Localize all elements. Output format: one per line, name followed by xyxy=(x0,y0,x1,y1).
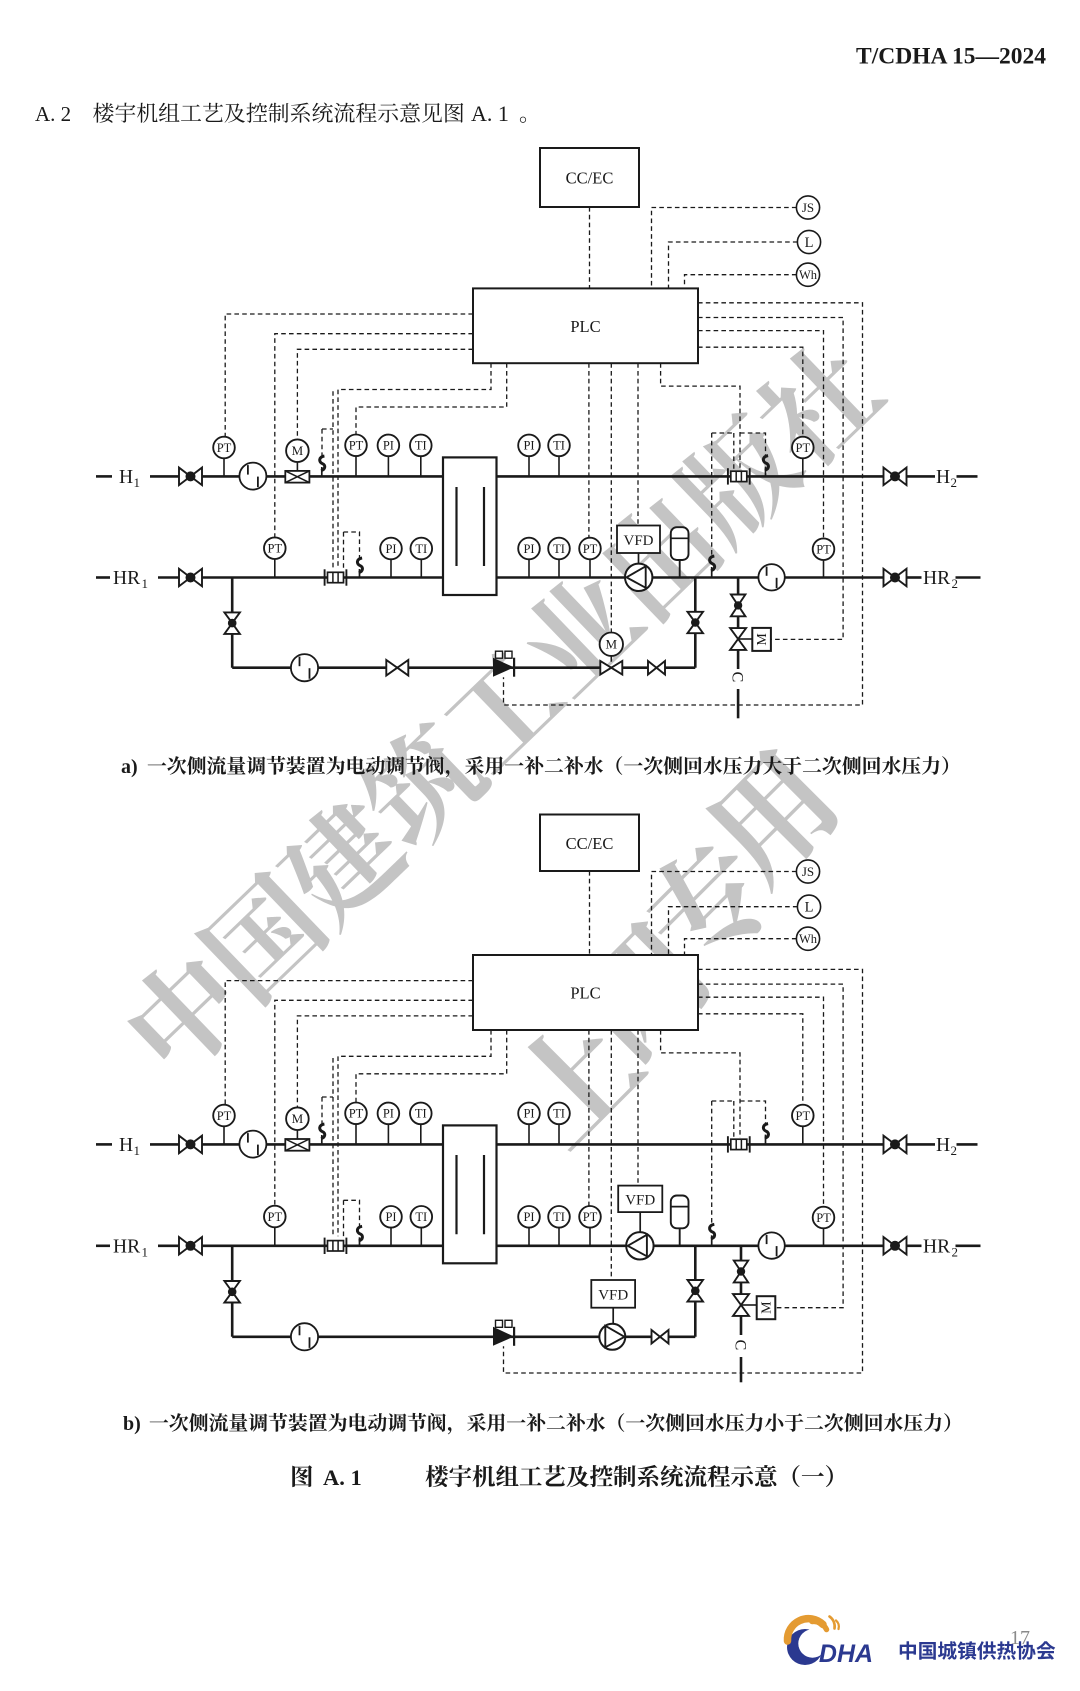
svg-text:M: M xyxy=(292,443,304,458)
svg-text:PLC: PLC xyxy=(570,317,600,336)
svg-text:L: L xyxy=(805,900,814,916)
svg-text:M: M xyxy=(606,637,618,652)
svg-text:PT: PT xyxy=(816,543,831,557)
svg-text:PI: PI xyxy=(385,542,396,556)
svg-text:1: 1 xyxy=(134,1143,141,1158)
svg-text:A. 1: A. 1 xyxy=(471,101,509,126)
svg-text:PT: PT xyxy=(349,439,364,453)
svg-text:CC/EC: CC/EC xyxy=(566,834,614,853)
svg-text:CC/EC: CC/EC xyxy=(566,169,614,188)
svg-text:PT: PT xyxy=(583,1210,598,1224)
svg-text:PT: PT xyxy=(816,1211,831,1225)
svg-text:TI: TI xyxy=(415,1210,427,1224)
svg-text:VFD: VFD xyxy=(623,533,653,549)
svg-text:JS: JS xyxy=(802,864,814,879)
svg-text:H: H xyxy=(936,467,950,488)
svg-text:2: 2 xyxy=(951,475,958,490)
svg-text:JS: JS xyxy=(802,200,814,215)
svg-text:TI: TI xyxy=(553,1107,565,1121)
svg-text:TI: TI xyxy=(553,542,565,556)
svg-text:HR: HR xyxy=(113,568,140,589)
svg-text:Wh: Wh xyxy=(799,268,818,282)
svg-text:PT: PT xyxy=(349,1107,364,1121)
svg-text:A. 2: A. 2 xyxy=(35,102,71,126)
svg-text:PT: PT xyxy=(796,441,811,455)
svg-text:H: H xyxy=(936,1135,950,1156)
svg-text:A. 1: A. 1 xyxy=(323,1465,362,1490)
svg-text:1: 1 xyxy=(134,475,141,490)
svg-text:2: 2 xyxy=(951,1143,958,1158)
svg-text:L: L xyxy=(805,235,814,251)
svg-text:PT: PT xyxy=(268,1210,283,1224)
svg-text:PI: PI xyxy=(383,439,394,453)
svg-text:PI: PI xyxy=(523,542,534,556)
svg-text:PI: PI xyxy=(523,439,534,453)
svg-text:HR: HR xyxy=(113,1236,140,1257)
svg-text:M: M xyxy=(292,1111,304,1126)
svg-text:PT: PT xyxy=(268,542,283,556)
svg-text:PT: PT xyxy=(796,1109,811,1123)
svg-text:1: 1 xyxy=(142,576,149,591)
svg-text:PT: PT xyxy=(217,1109,232,1123)
svg-text:2: 2 xyxy=(952,576,959,591)
svg-text:T/CDHA 15—2024: T/CDHA 15—2024 xyxy=(856,44,1046,70)
svg-text:TI: TI xyxy=(415,542,427,556)
svg-text:PT: PT xyxy=(583,542,598,556)
svg-text:H: H xyxy=(119,1135,133,1156)
svg-text:TI: TI xyxy=(415,1107,427,1121)
svg-text:DHA: DHA xyxy=(819,1640,873,1668)
svg-text:PI: PI xyxy=(523,1107,534,1121)
svg-text:VFD: VFD xyxy=(625,1192,655,1208)
svg-text:1: 1 xyxy=(142,1244,149,1259)
svg-text:PI: PI xyxy=(523,1210,534,1224)
svg-text:TI: TI xyxy=(415,439,427,453)
svg-text:HR: HR xyxy=(923,1236,950,1257)
svg-text:b): b) xyxy=(123,1413,141,1435)
svg-text:M: M xyxy=(760,1301,775,1314)
svg-text:PI: PI xyxy=(383,1107,394,1121)
svg-text:a): a) xyxy=(121,756,138,778)
svg-text:H: H xyxy=(119,467,133,488)
svg-text:PT: PT xyxy=(217,441,232,455)
svg-text:PI: PI xyxy=(385,1210,396,1224)
svg-text:TI: TI xyxy=(553,1210,565,1224)
svg-text:TI: TI xyxy=(553,439,565,453)
svg-text:PLC: PLC xyxy=(570,984,600,1003)
svg-text:M: M xyxy=(755,633,770,646)
svg-text:HR: HR xyxy=(923,568,950,589)
svg-text:2: 2 xyxy=(952,1244,959,1259)
svg-text:Wh: Wh xyxy=(799,932,818,946)
svg-text:VFD: VFD xyxy=(598,1287,628,1303)
svg-text:C: C xyxy=(729,672,746,683)
svg-text:C: C xyxy=(732,1340,749,1351)
